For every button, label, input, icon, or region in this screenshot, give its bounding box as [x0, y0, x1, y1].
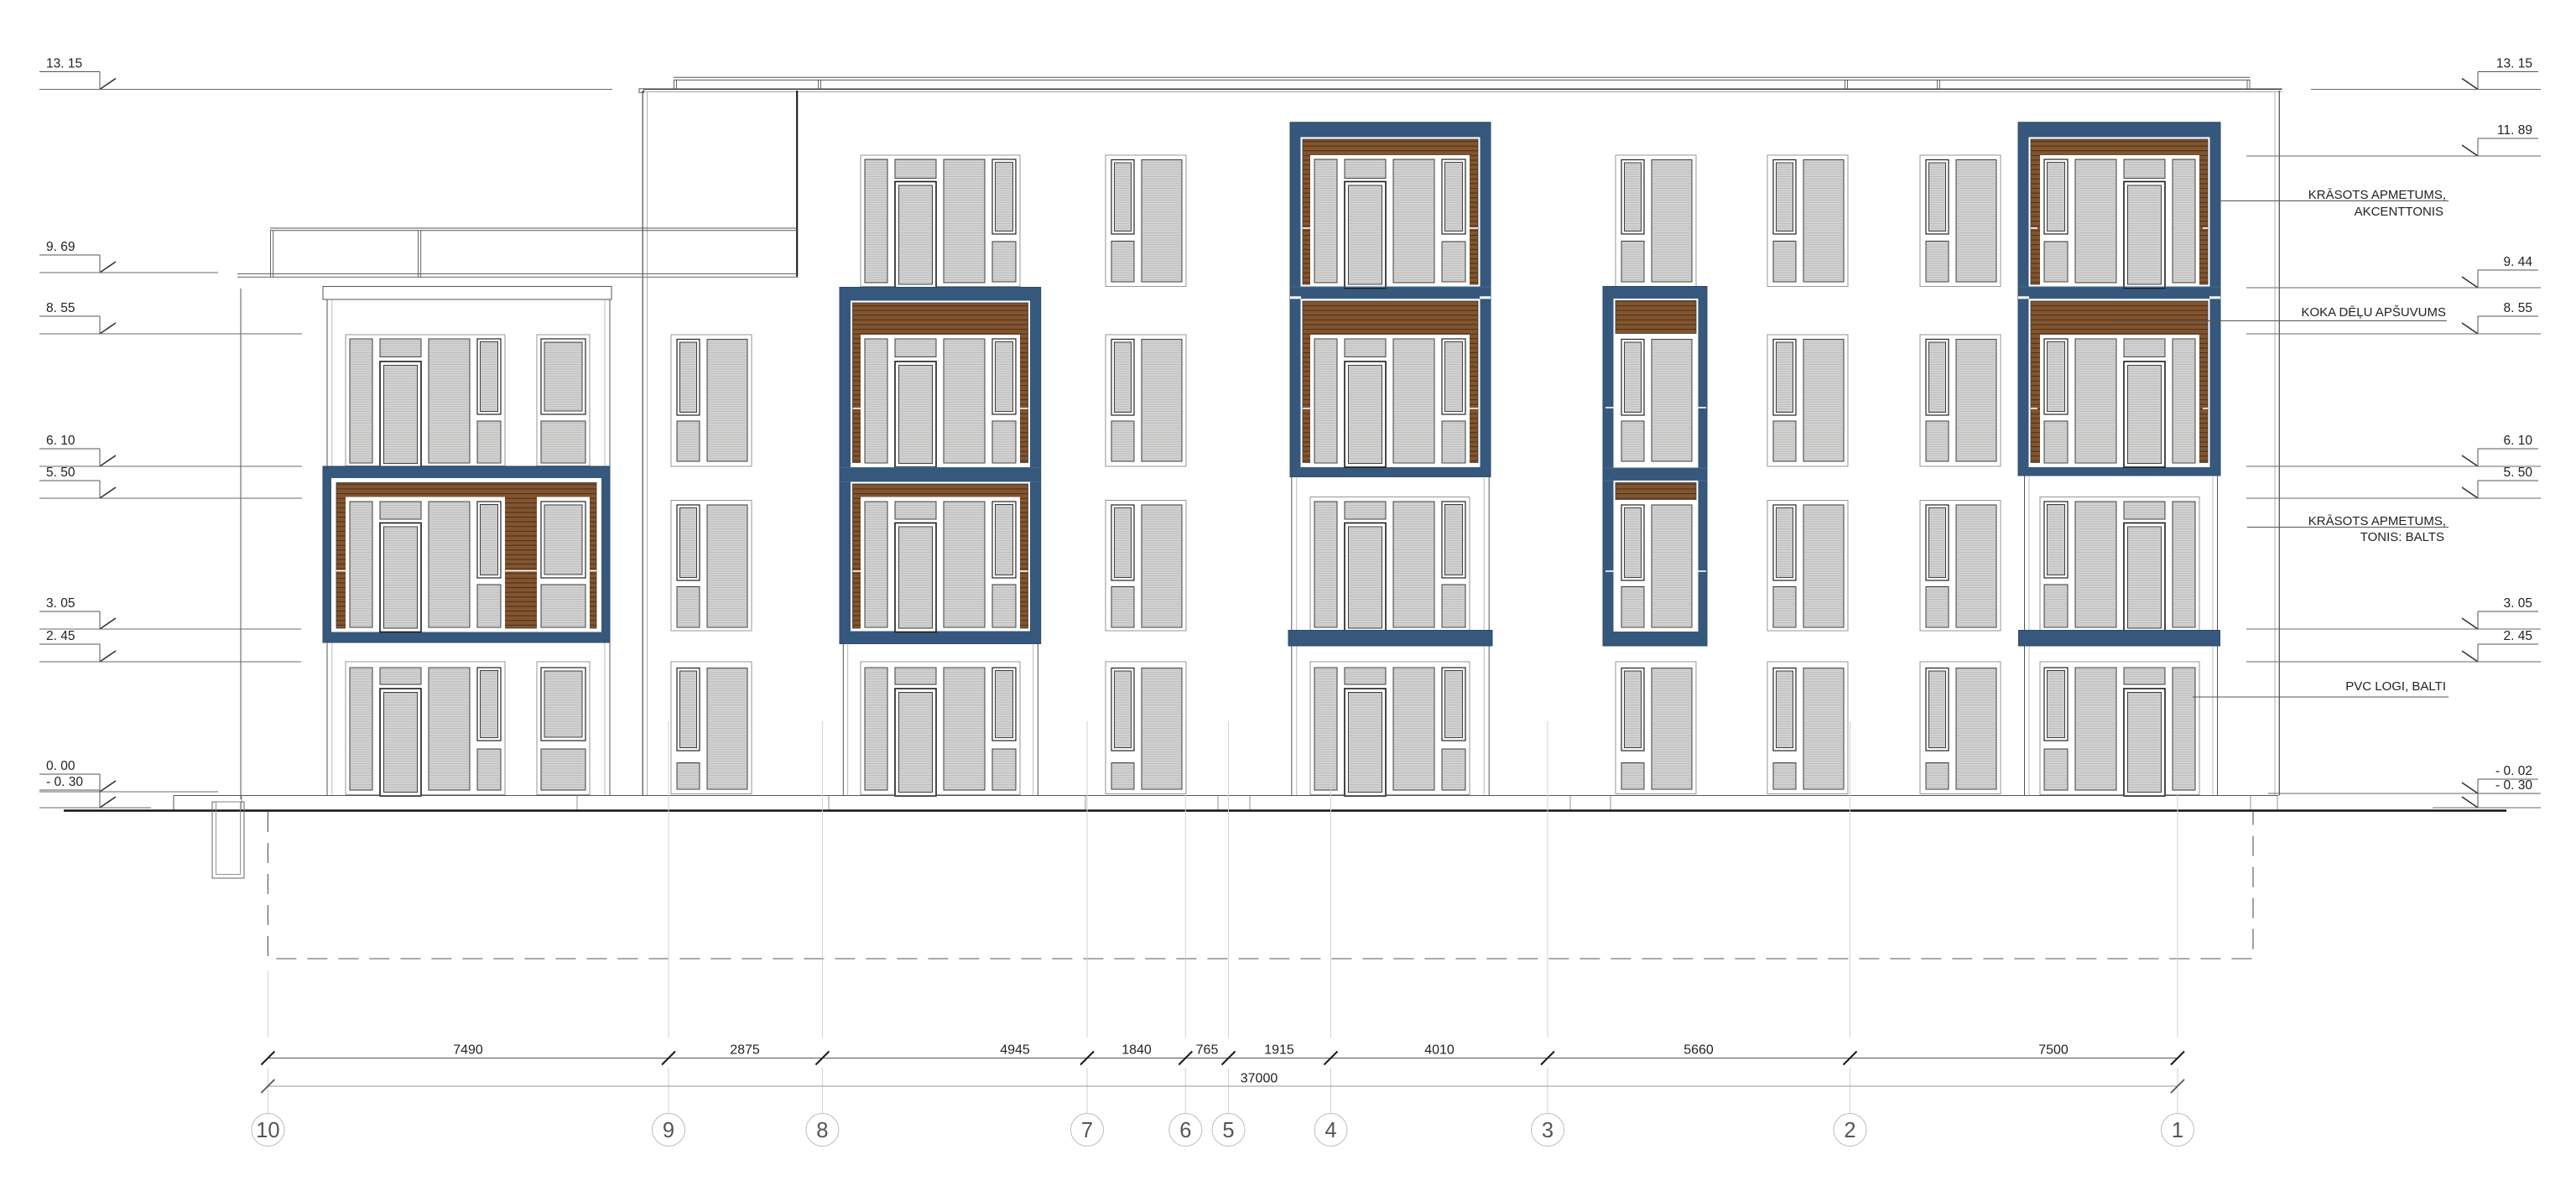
svg-text:9. 44: 9. 44 [2504, 255, 2533, 269]
svg-text:5. 50: 5. 50 [46, 465, 75, 480]
svg-text:4: 4 [1324, 1119, 1336, 1142]
svg-text:8: 8 [816, 1119, 828, 1142]
svg-text:7490: 7490 [453, 1043, 483, 1058]
svg-text:13. 15: 13. 15 [2496, 57, 2532, 71]
svg-text:9: 9 [663, 1119, 674, 1142]
svg-text:- 0. 30: - 0. 30 [2495, 778, 2532, 793]
svg-text:PVC LOGI, BALTI: PVC LOGI, BALTI [2345, 679, 2446, 694]
svg-text:8. 55: 8. 55 [2504, 301, 2532, 315]
svg-text:- 0. 02: - 0. 02 [2495, 764, 2532, 778]
svg-text:7: 7 [1081, 1119, 1093, 1142]
svg-text:3. 05: 3. 05 [46, 596, 75, 611]
svg-text:TONIS: BALTS: TONIS: BALTS [2360, 530, 2444, 544]
svg-text:5660: 5660 [1684, 1043, 1714, 1058]
svg-text:5. 50: 5. 50 [2504, 465, 2533, 480]
svg-text:3: 3 [1542, 1119, 1553, 1142]
svg-text:11. 89: 11. 89 [2497, 123, 2532, 138]
svg-text:8. 55: 8. 55 [46, 301, 75, 315]
svg-text:3. 05: 3. 05 [2504, 596, 2532, 611]
svg-text:- 0. 30: - 0. 30 [46, 775, 83, 789]
svg-text:0. 00: 0. 00 [46, 759, 75, 773]
svg-text:2. 45: 2. 45 [2504, 629, 2532, 643]
svg-text:6. 10: 6. 10 [46, 434, 75, 448]
svg-text:5: 5 [1222, 1119, 1234, 1142]
svg-text:37000: 37000 [1241, 1072, 1278, 1086]
svg-text:6. 10: 6. 10 [2504, 434, 2533, 448]
svg-text:2875: 2875 [730, 1043, 760, 1058]
svg-text:1840: 1840 [1121, 1043, 1152, 1058]
svg-text:6: 6 [1179, 1119, 1191, 1142]
svg-text:4010: 4010 [1424, 1043, 1455, 1058]
svg-text:7500: 7500 [2038, 1043, 2069, 1058]
svg-text:KOKA DĒĻU APŠUVUMS: KOKA DĒĻU APŠUVUMS [2301, 305, 2446, 320]
svg-text:13. 15: 13. 15 [46, 57, 82, 71]
svg-text:1915: 1915 [1264, 1043, 1294, 1058]
svg-text:10: 10 [256, 1119, 279, 1142]
svg-text:2. 45: 2. 45 [46, 629, 75, 643]
svg-text:765: 765 [1196, 1043, 1219, 1058]
svg-text:2: 2 [1844, 1119, 1855, 1142]
svg-text:KRĀSOTS APMETUMS,: KRĀSOTS APMETUMS, [2308, 514, 2446, 528]
svg-text:1: 1 [2172, 1119, 2183, 1142]
svg-text:9. 69: 9. 69 [46, 240, 75, 254]
svg-text:KRĀSOTS APMETUMS,: KRĀSOTS APMETUMS, [2308, 188, 2446, 202]
svg-text:AKCENTTONIS: AKCENTTONIS [2355, 205, 2443, 219]
svg-text:4945: 4945 [1000, 1043, 1030, 1058]
